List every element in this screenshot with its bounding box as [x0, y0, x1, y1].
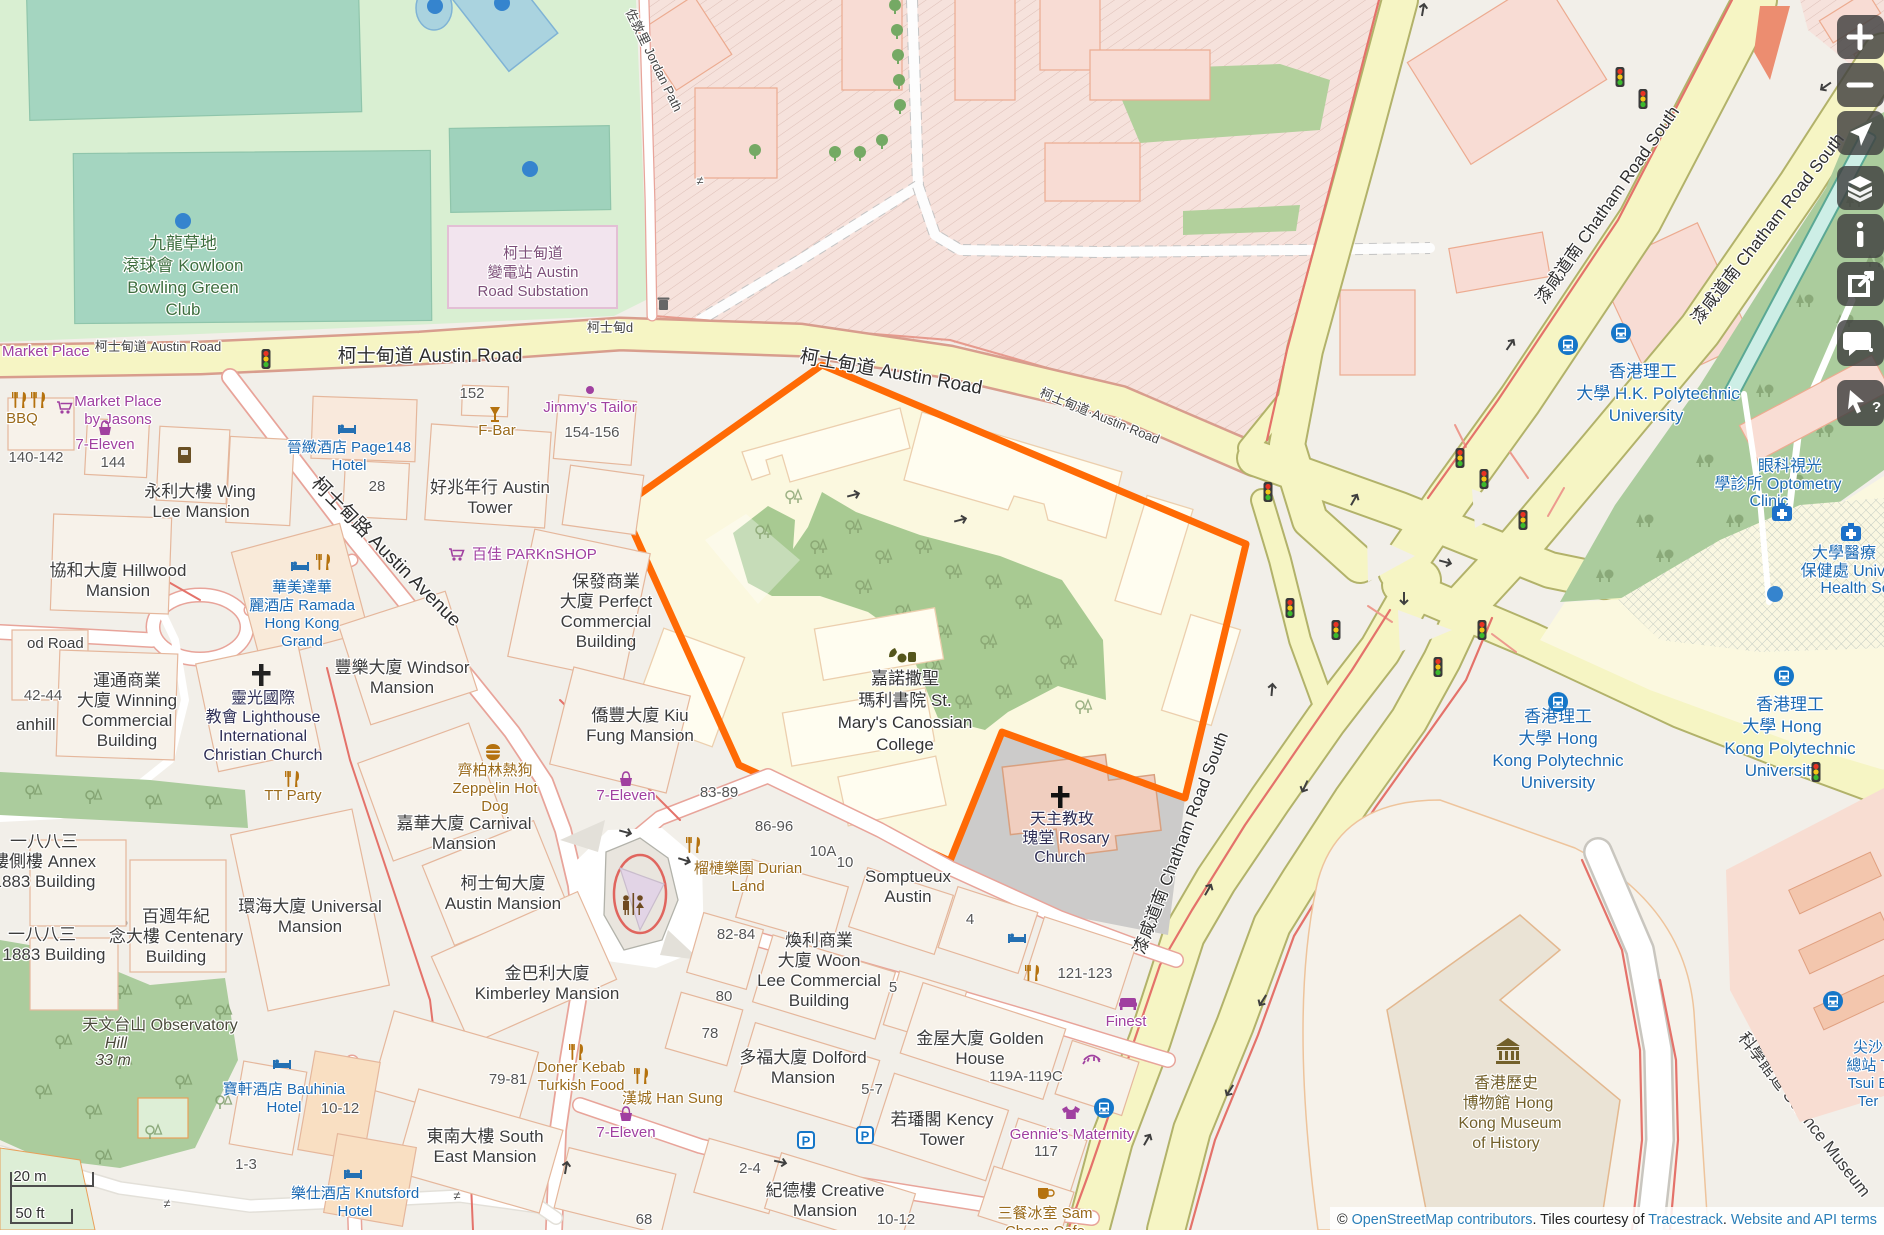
svg-text:Lee Commercial: Lee Commercial: [757, 971, 881, 990]
svg-text:協和大廈 Hillwood: 協和大廈 Hillwood: [50, 561, 187, 580]
svg-text:齊柏林熱狗: 齊柏林熱狗: [457, 761, 532, 779]
svg-text:一八八三: 一八八三: [8, 925, 76, 944]
svg-text:靈光國際: 靈光國際: [231, 689, 295, 707]
svg-text:Club: Club: [166, 300, 201, 319]
svg-text:83-89: 83-89: [700, 784, 738, 801]
svg-text:博物館 Hong: 博物館 Hong: [1463, 1094, 1554, 1112]
svg-text:≠: ≠: [696, 173, 703, 188]
svg-text:Hotel: Hotel: [331, 457, 366, 474]
svg-text:香港理工: 香港理工: [1756, 695, 1824, 714]
svg-text:保健處 Univers: 保健處 Univers: [1801, 562, 1884, 580]
svg-text:Dog: Dog: [481, 798, 509, 815]
svg-text:117: 117: [1034, 1143, 1058, 1160]
svg-text:教會 Lighthouse: 教會 Lighthouse: [206, 708, 321, 726]
svg-text:1883 Building: 1883 Building: [0, 872, 96, 891]
svg-text:Hotel: Hotel: [266, 1099, 301, 1116]
svg-text:University: University: [1745, 761, 1820, 780]
svg-text:Market Place: Market Place: [74, 393, 162, 410]
svg-text:Building: Building: [146, 947, 207, 966]
svg-text:紀德樓 Creative: 紀德樓 Creative: [765, 1181, 884, 1200]
svg-text:Chaan Cafe: Chaan Cafe: [1005, 1223, 1085, 1230]
svg-text:樓側樓 Annex: 樓側樓 Annex: [0, 852, 96, 871]
svg-text:大廈 Woon: 大廈 Woon: [778, 951, 861, 970]
svg-text:Kong Museum: Kong Museum: [1458, 1115, 1561, 1132]
svg-text:Building: Building: [576, 632, 637, 651]
svg-text:總站 T: 總站 T: [1846, 1056, 1884, 1074]
svg-text:Building: Building: [97, 731, 158, 750]
svg-text:滾球會 Kowloon: 滾球會 Kowloon: [123, 256, 244, 275]
svg-text:140-142: 140-142: [8, 449, 63, 466]
svg-text:變電站 Austin: 變電站 Austin: [488, 264, 579, 281]
svg-text:Finest: Finest: [1106, 1013, 1148, 1030]
svg-text:九龍草地: 九龍草地: [149, 234, 217, 253]
svg-text:anhill: anhill: [16, 715, 56, 734]
svg-text:7-Eleven: 7-Eleven: [75, 436, 134, 453]
svg-text:寶軒酒店 Bauhinia: 寶軒酒店 Bauhinia: [223, 1080, 346, 1098]
svg-text:1-3: 1-3: [235, 1156, 257, 1173]
svg-text:永利大樓 Wing: 永利大樓 Wing: [144, 482, 255, 501]
svg-text:柯士甸道: 柯士甸道: [503, 245, 563, 262]
svg-text:百週年紀: 百週年紀: [142, 907, 210, 926]
svg-text:大學 Hong: 大學 Hong: [1518, 729, 1597, 748]
svg-text:7-Eleven: 7-Eleven: [596, 787, 655, 804]
svg-text:麗酒店 Ramada: 麗酒店 Ramada: [249, 597, 356, 614]
svg-text:柯士甸道 Austin Road: 柯士甸道 Austin Road: [338, 345, 523, 367]
svg-text:10: 10: [837, 854, 854, 871]
svg-text:嘉華大廈 Carnival: 嘉華大廈 Carnival: [396, 814, 531, 833]
svg-text:78: 78: [702, 1025, 719, 1042]
svg-text:Commercial: Commercial: [561, 612, 652, 631]
svg-text:香港歷史: 香港歷史: [1474, 1074, 1538, 1092]
svg-text:柯士甸大廈: 柯士甸大廈: [461, 874, 546, 893]
svg-text:International: International: [219, 728, 307, 745]
svg-text:10-12: 10-12: [321, 1100, 359, 1117]
svg-text:5: 5: [889, 979, 897, 996]
svg-text:一八八三: 一八八三: [10, 832, 78, 851]
svg-text:East Mansion: East Mansion: [434, 1147, 537, 1166]
svg-text:≠: ≠: [453, 1188, 460, 1203]
svg-text:金巴利大廈: 金巴利大廈: [505, 964, 590, 983]
svg-text:79-81: 79-81: [489, 1071, 527, 1088]
svg-text:多福大廈 Dolford: 多福大廈 Dolford: [739, 1048, 867, 1067]
svg-text:Kimberley Mansion: Kimberley Mansion: [475, 984, 620, 1003]
svg-text:Mansion: Mansion: [86, 581, 150, 600]
svg-text:Doner Kebab: Doner Kebab: [537, 1059, 625, 1076]
svg-text:若璠閣 Kency: 若璠閣 Kency: [891, 1110, 994, 1129]
svg-text:大廈 Winning: 大廈 Winning: [77, 691, 177, 710]
svg-text:Building: Building: [789, 991, 850, 1010]
svg-text:P: P: [861, 1129, 870, 1144]
svg-text:Tower: Tower: [919, 1130, 965, 1149]
svg-text:7-Eleven: 7-Eleven: [596, 1124, 655, 1141]
svg-text:好兆年行 Austin: 好兆年行 Austin: [430, 478, 550, 497]
svg-text:瑰堂 Rosary: 瑰堂 Rosary: [1022, 829, 1109, 847]
svg-text:Hong Kong: Hong Kong: [264, 615, 339, 632]
svg-text:大學 H.K. Polytechnic: 大學 H.K. Polytechnic: [1576, 384, 1740, 403]
svg-text:152: 152: [459, 385, 484, 402]
svg-text:Lee Mansion: Lee Mansion: [152, 502, 249, 521]
svg-text:Austin: Austin: [884, 887, 931, 906]
svg-text:樂仕酒店 Knutsford: 樂仕酒店 Knutsford: [291, 1185, 419, 1202]
svg-text:5-7: 5-7: [861, 1081, 883, 1098]
svg-text:Gennie's Maternity: Gennie's Maternity: [1010, 1126, 1135, 1143]
svg-text:20 m: 20 m: [13, 1168, 46, 1185]
svg-text:Mary's Canossian: Mary's Canossian: [838, 713, 973, 732]
svg-text:Christian Church: Christian Church: [203, 747, 322, 764]
svg-text:2-4: 2-4: [739, 1160, 761, 1177]
svg-text:瑪利書院 St.: 瑪利書院 St.: [858, 691, 952, 710]
svg-text:Turkish Food: Turkish Food: [538, 1077, 625, 1094]
svg-text:大學 Hong: 大學 Hong: [1742, 717, 1821, 736]
svg-text:4: 4: [966, 911, 974, 928]
svg-text:Jimmy's Tailor: Jimmy's Tailor: [543, 399, 636, 416]
svg-text:42-44: 42-44: [24, 687, 62, 704]
svg-text:119A-119C: 119A-119C: [989, 1068, 1063, 1085]
svg-text:Mansion: Mansion: [432, 834, 496, 853]
svg-text:僑豐大廈 Kiu: 僑豐大廈 Kiu: [591, 706, 688, 725]
svg-text:College: College: [876, 735, 934, 754]
svg-text:1883 Building: 1883 Building: [2, 945, 105, 964]
svg-text:大學醫療: 大學醫療: [1812, 544, 1876, 562]
svg-text:Tower: Tower: [467, 498, 513, 517]
svg-text:10A: 10A: [810, 843, 837, 860]
svg-text:154-156: 154-156: [564, 424, 619, 441]
svg-text:學診所 Optometry: 學診所 Optometry: [1714, 475, 1841, 493]
svg-text:80: 80: [716, 988, 733, 1005]
svg-text:大廈 Perfect: 大廈 Perfect: [560, 592, 653, 611]
svg-text:豐樂大廈 Windsor: 豐樂大廈 Windsor: [334, 658, 469, 677]
svg-text:33 m: 33 m: [95, 1052, 131, 1069]
svg-text:F-Bar: F-Bar: [478, 422, 516, 439]
svg-text:University: University: [1609, 406, 1684, 425]
svg-text:煥利商業: 煥利商業: [785, 931, 853, 950]
svg-text:Somptueux: Somptueux: [865, 867, 951, 886]
svg-text:50 ft: 50 ft: [15, 1205, 45, 1222]
svg-text:念大樓 Centenary: 念大樓 Centenary: [109, 926, 244, 946]
svg-text:Austin Mansion: Austin Mansion: [445, 894, 561, 913]
svg-text:© OpenStreetMap contributors.: © OpenStreetMap contributors. Tiles cour…: [1337, 1211, 1877, 1228]
svg-text:金屋大廈 Golden: 金屋大廈 Golden: [916, 1029, 1044, 1048]
svg-text:百佳 PARKnSHOP: 百佳 PARKnSHOP: [472, 546, 597, 563]
svg-text:10-12: 10-12: [877, 1211, 915, 1228]
svg-text:Mansion: Mansion: [370, 678, 434, 697]
svg-text:Mansion: Mansion: [793, 1201, 857, 1220]
svg-text:Fung Mansion: Fung Mansion: [586, 726, 694, 745]
svg-text:68: 68: [636, 1211, 653, 1228]
svg-text:天主教玫: 天主教玫: [1030, 810, 1094, 828]
svg-text:BBQ: BBQ: [6, 410, 38, 427]
svg-text:od Road: od Road: [27, 635, 84, 652]
svg-text:漢城 Han Sung: 漢城 Han Sung: [622, 1090, 723, 1107]
svg-text:Kong Polytechnic: Kong Polytechnic: [1492, 751, 1624, 770]
svg-text:P: P: [802, 1134, 811, 1149]
svg-text:柯士甸d: 柯士甸d: [587, 320, 633, 335]
svg-text:晉緻酒店 Page148: 晉緻酒店 Page148: [287, 439, 411, 456]
svg-text:121-123: 121-123: [1057, 965, 1112, 982]
svg-text:天文台山 Observatory: 天文台山 Observatory: [82, 1016, 238, 1034]
svg-text:House: House: [955, 1049, 1004, 1068]
svg-text:Health Servic: Health Servic: [1820, 580, 1884, 597]
svg-text:Hotel: Hotel: [337, 1203, 372, 1220]
svg-text:Ter: Ter: [1858, 1093, 1879, 1110]
svg-text:眼科視光: 眼科視光: [1758, 457, 1822, 475]
svg-text:Land: Land: [731, 878, 764, 895]
svg-text:86-96: 86-96: [755, 818, 793, 835]
svg-text:Grand: Grand: [281, 633, 323, 650]
svg-text:嘉諾撒聖: 嘉諾撒聖: [871, 669, 939, 688]
svg-text:≠: ≠: [163, 1196, 170, 1211]
svg-text:82-84: 82-84: [717, 926, 755, 943]
svg-text:by Jasons: by Jasons: [84, 411, 152, 428]
svg-text:榴槤樂園 Durian: 榴槤樂園 Durian: [694, 860, 802, 877]
svg-text:University: University: [1521, 773, 1596, 792]
svg-text:Church: Church: [1034, 849, 1086, 866]
svg-text:保發商業: 保發商業: [572, 572, 640, 591]
svg-text:Commercial: Commercial: [82, 711, 173, 730]
svg-text:?: ?: [1872, 399, 1881, 416]
svg-text:香港理工: 香港理工: [1609, 362, 1677, 381]
svg-text:Mansion: Mansion: [771, 1068, 835, 1087]
svg-text:Kong Polytechnic: Kong Polytechnic: [1724, 739, 1856, 758]
svg-text:環海大廈 Universal: 環海大廈 Universal: [238, 897, 382, 916]
svg-text:Zeppelin Hot: Zeppelin Hot: [452, 780, 538, 797]
svg-text:柯士甸道 Austin Road: 柯士甸道 Austin Road: [95, 339, 221, 354]
svg-text:Market Place: Market Place: [2, 343, 90, 360]
svg-text:三餐冰室 Sam: 三餐冰室 Sam: [997, 1205, 1092, 1222]
svg-text:of History: of History: [1472, 1135, 1540, 1152]
svg-text:Tsui E: Tsui E: [1848, 1075, 1884, 1092]
svg-text:28: 28: [369, 478, 386, 495]
svg-text:Hill: Hill: [105, 1035, 128, 1052]
svg-text:144: 144: [100, 454, 125, 471]
svg-text:東南大樓 South: 東南大樓 South: [426, 1127, 543, 1146]
svg-text:尖沙: 尖沙: [1853, 1039, 1883, 1056]
svg-text:Bowling Green: Bowling Green: [127, 278, 239, 297]
svg-text:Mansion: Mansion: [278, 917, 342, 936]
svg-text:華美達華: 華美達華: [272, 579, 332, 596]
svg-text:運通商業: 運通商業: [93, 671, 161, 690]
svg-text:TT Party: TT Party: [264, 787, 322, 804]
svg-text:Road Substation: Road Substation: [478, 283, 589, 300]
